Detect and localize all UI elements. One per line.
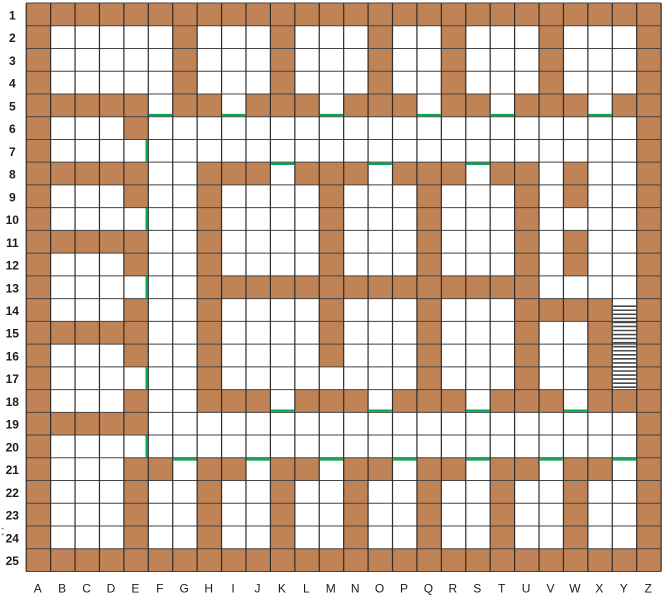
svg-text:B: B (58, 581, 66, 595)
svg-text:E: E (131, 581, 139, 595)
svg-text:F: F (156, 581, 163, 595)
svg-text:I: I (231, 581, 234, 595)
svg-text:9: 9 (9, 190, 16, 204)
svg-text:23: 23 (6, 509, 20, 523)
svg-text:C: C (82, 581, 91, 595)
svg-text:U: U (522, 581, 531, 595)
svg-text:O: O (375, 581, 384, 595)
svg-text:L: L (303, 581, 310, 595)
svg-text:15: 15 (6, 327, 20, 341)
svg-text:5: 5 (9, 99, 16, 113)
svg-text:19: 19 (6, 418, 20, 432)
svg-text:18: 18 (6, 395, 20, 409)
svg-text:1: 1 (9, 8, 16, 22)
svg-text:25: 25 (6, 554, 20, 568)
svg-text:8: 8 (9, 168, 16, 182)
svg-text:20: 20 (6, 440, 20, 454)
svg-text:J: J (254, 581, 260, 595)
svg-text:6: 6 (9, 122, 16, 136)
svg-text:Y: Y (620, 581, 628, 595)
svg-text:A: A (34, 581, 42, 595)
svg-text:2: 2 (9, 31, 16, 45)
svg-text:14: 14 (6, 304, 20, 318)
svg-text:13: 13 (6, 281, 20, 295)
svg-text:W: W (569, 581, 581, 595)
svg-text:V: V (547, 581, 555, 595)
svg-text:24: 24 (6, 531, 20, 545)
svg-text:12: 12 (6, 259, 20, 273)
svg-text:11: 11 (6, 236, 19, 250)
svg-text:3: 3 (9, 54, 16, 68)
svg-text:21: 21 (6, 463, 20, 477)
svg-text:H: H (204, 581, 213, 595)
svg-text:P: P (400, 581, 408, 595)
svg-text:7: 7 (9, 145, 16, 159)
svg-text:D: D (107, 581, 116, 595)
svg-text:16: 16 (6, 349, 20, 363)
svg-text:K: K (278, 581, 286, 595)
svg-text:R: R (449, 581, 458, 595)
svg-text:X: X (595, 581, 603, 595)
svg-text:N: N (351, 581, 360, 595)
svg-text:Q: Q (424, 581, 433, 595)
svg-text:17: 17 (6, 372, 20, 386)
svg-text:S: S (473, 581, 481, 595)
svg-text:22: 22 (6, 486, 20, 500)
svg-text:10: 10 (6, 213, 20, 227)
svg-text:4: 4 (9, 77, 16, 91)
svg-text:G: G (180, 581, 189, 595)
svg-text:T: T (498, 581, 506, 595)
svg-text:M: M (326, 581, 336, 595)
svg-text:Z: Z (645, 581, 652, 595)
